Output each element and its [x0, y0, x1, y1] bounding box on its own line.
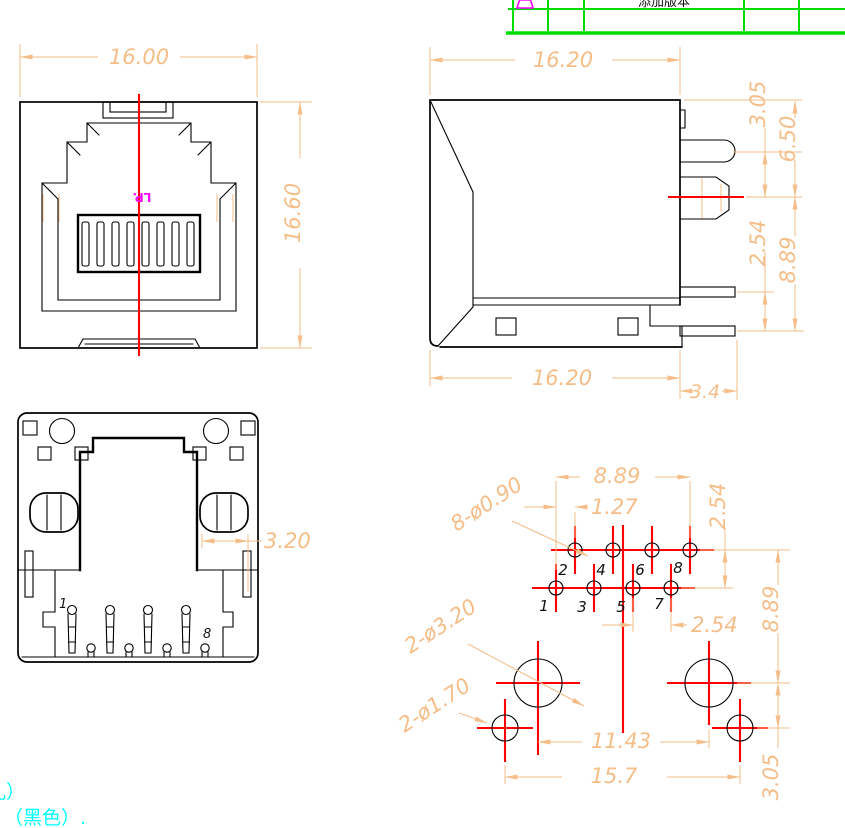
drawing-canvas: 添加版本 LP	[0, 0, 845, 828]
side-bottom-width-value: 16.20	[532, 366, 592, 390]
fp-side-offset-dimension: 3.05	[757, 683, 790, 800]
bottom-pin1-label: 1	[59, 597, 67, 612]
side-latch-offset-value: 3.05	[746, 81, 770, 128]
front-height-value: 16.60	[281, 183, 305, 243]
hole-label-4: 4	[596, 561, 606, 579]
fp-pin-hole-callout: 8-ø0.90	[446, 472, 588, 556]
solder-pin-1	[680, 287, 735, 297]
side-contact-height-value: 6.50	[776, 116, 800, 163]
mount-hole-right	[204, 419, 229, 444]
solder-pin-2	[680, 326, 735, 336]
fp-row-pitch-value: 2.54	[706, 483, 730, 530]
hole-label-1: 1	[539, 597, 549, 615]
note-line-2: （黑色）.	[4, 807, 86, 828]
side-pin-length-value: 3.4	[690, 381, 720, 403]
front-width-dimension: 16.00	[20, 44, 257, 97]
revision-cell-text: 添加版本	[638, 0, 690, 10]
snap-post-left	[30, 493, 78, 532]
fp-row-span-value: 8.89	[594, 464, 641, 488]
note-line-1: 孔）	[0, 781, 25, 803]
notes: 孔） （黑色）.	[0, 781, 86, 828]
mount-hole-left	[50, 419, 75, 444]
side-pin-length-dimension: 3.4	[680, 340, 737, 403]
front-view: LP. 16.00 16.60	[20, 44, 312, 356]
fp-row-offset-dimension: 1.27	[524, 495, 638, 538]
fp-row-pitch-dimension: 2.54	[681, 483, 790, 588]
revision-triangle-icon	[517, 0, 533, 8]
fp-side-hole-label: 2-ø1.70	[394, 673, 475, 737]
hole-label-3: 3	[577, 598, 587, 616]
bottom-view: 1 8 3.20	[18, 413, 311, 662]
side-top-width-value: 16.20	[533, 48, 593, 72]
side-pin-pitch-value: 2.54	[746, 220, 770, 267]
bottom-post-slot-dimension: 3.20	[202, 529, 311, 592]
fp-side-span-dimension: 15.7	[505, 764, 740, 788]
side-view: 16.20 3.05 6.50 2.54 8.89	[430, 47, 804, 403]
top-latch-pin	[680, 140, 735, 162]
bottom-cavity-outline	[80, 438, 197, 570]
hole-label-6: 6	[635, 561, 645, 579]
contact-pins-long	[68, 606, 191, 654]
hole-label-2: 2	[558, 561, 568, 579]
side-contact-to-pin-value: 8.89	[776, 237, 800, 284]
watermark-text: LP.	[133, 190, 152, 204]
fp-post-hole-label: 2-ø3.20	[400, 594, 481, 658]
title-block: 添加版本	[506, 0, 845, 33]
fp-side-span-value: 15.7	[591, 764, 638, 788]
side-front-face	[430, 100, 438, 346]
bottom-body-outline	[18, 413, 258, 662]
front-height-dimension: 16.60	[260, 102, 312, 348]
front-width-value: 16.00	[109, 45, 169, 69]
side-contact-to-pin-dimension: 8.89	[776, 197, 800, 331]
fp-side-hole-callout: 2-ø1.70	[394, 673, 487, 737]
fp-pin-hole-label: 8-ø0.90	[446, 472, 527, 536]
fp-row-offset-value: 1.27	[591, 495, 638, 519]
fp-post-pitch-dimension: 11.43	[538, 729, 709, 753]
fp-post-pitch-value: 11.43	[591, 729, 651, 753]
side-top-width-dimension: 16.20	[430, 47, 680, 95]
hole-label-7: 7	[654, 595, 664, 613]
pcb-footprint: 2 4 6 8 1 3 5 7 8.89	[394, 464, 790, 800]
side-bottom-width-dimension: 16.20	[430, 350, 680, 399]
fp-side-offset-value: 3.05	[759, 754, 783, 801]
fp-post-span-dimension: 8.89	[737, 550, 790, 683]
hole-label-8: 8	[673, 559, 683, 577]
fp-post-span-value: 8.89	[759, 586, 783, 633]
cad-drawing-sheet: 添加版本 LP	[0, 0, 845, 828]
bottom-post-slot-value: 3.20	[264, 529, 311, 553]
contact-pins-short	[87, 644, 209, 657]
hole-label-5: 5	[616, 598, 626, 616]
bottom-pin8-label: 8	[203, 627, 211, 642]
snap-post-right	[200, 493, 248, 532]
fp-pin-pitch-value: 2.54	[691, 613, 738, 637]
